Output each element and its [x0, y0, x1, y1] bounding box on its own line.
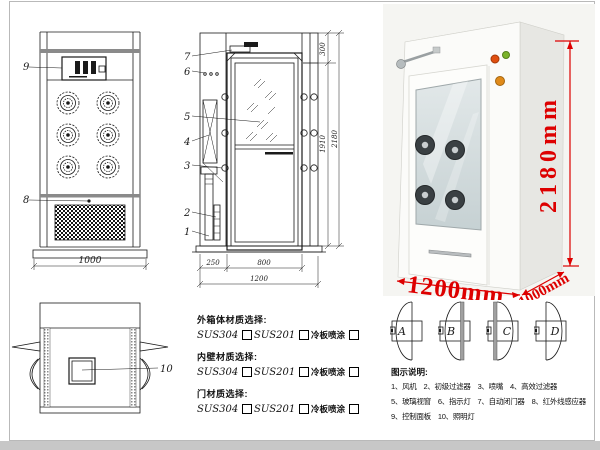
side-walls [192, 33, 326, 252]
nozzle-icon [57, 156, 79, 178]
callout-1-label: 1 [184, 227, 190, 238]
material-checkbox[interactable] [242, 404, 252, 414]
dim-1910-label: 1910 [319, 135, 327, 153]
material-section-inner: 内壁材质选择: SUS304 SUS201 冷板喷涂 [197, 350, 383, 378]
material-option: SUS201 [254, 367, 311, 378]
legend-item: 10、照明灯 [438, 411, 475, 422]
callout-8-dot [87, 199, 90, 202]
nozzle-icon [57, 92, 79, 114]
door-config-b: B [438, 299, 472, 363]
callout-9-label: 9 [23, 62, 30, 73]
front-view-drawing: 9 8 1000 [15, 22, 170, 277]
parts-legend: 图示说明: 1、风机 2、初级过滤器 3、喷嘴 4、高效过滤器 5、玻璃视窗 6… [391, 366, 593, 426]
material-checkbox[interactable] [299, 404, 309, 414]
legend-item: 9、控制面板 [391, 411, 431, 422]
material-option: SUS304 [197, 404, 254, 415]
legend-item: 2、初级过滤器 [423, 381, 470, 392]
dim-1200-label: 1200 [250, 275, 268, 283]
callout-4-label: 4 [183, 137, 190, 148]
material-checkbox[interactable] [349, 404, 359, 414]
orange-indicator-light [496, 77, 505, 86]
callout-10-label: 10 [160, 364, 173, 375]
legend-item: 3、喷嘴 [478, 381, 503, 392]
callout-7-label: 7 [184, 52, 191, 63]
callout-2-label: 2 [183, 208, 190, 219]
bottom-edge-bar [0, 441, 600, 450]
dim-800-label: 800 [257, 259, 271, 267]
side-door [227, 42, 302, 250]
nozzle-icon [97, 92, 119, 114]
callout-6-label: 6 [184, 67, 191, 78]
callout-8-leader [29, 200, 89, 201]
nozzle-grid [57, 92, 119, 178]
side-nozzles [222, 94, 317, 171]
legend-row: 9、控制面板 10、照明灯 [391, 411, 593, 422]
product-photo: 2180mm 1200mm 1000mm [383, 4, 595, 300]
material-section-label: 内壁材质选择: [197, 350, 383, 363]
control-panel [62, 57, 106, 80]
material-checkbox[interactable] [242, 330, 252, 340]
material-section-label: 外箱体材质选择: [197, 313, 383, 326]
config-letter: C [503, 325, 512, 338]
legend-item: 5、玻璃视窗 [391, 396, 431, 407]
nozzle-icon [57, 124, 79, 146]
red-indicator-light [491, 55, 499, 63]
config-letter: D [550, 325, 560, 338]
legend-item: 7、自动闭门器 [478, 396, 525, 407]
dim-300-label: 300 [319, 42, 327, 56]
material-checkbox[interactable] [299, 330, 309, 340]
material-option: 冷板喷涂 [311, 403, 359, 415]
spec-sheet: 9 8 1000 [0, 0, 600, 450]
legend-row: 5、玻璃视窗 6、指示灯 7、自动闭门器 8、红外线感应器 [391, 396, 593, 407]
legend-item: 4、高效过滤器 [510, 381, 557, 392]
callout-8-label: 8 [23, 195, 29, 206]
material-option: SUS201 [254, 330, 311, 341]
dim-2180-label: 2180 [331, 130, 339, 149]
return-grille [55, 205, 125, 240]
top-view-body [40, 303, 140, 413]
photo-dim-height: 2180mm [536, 95, 562, 213]
callout-9-leader [29, 67, 62, 68]
height-dimensions: 300 1910 2180 [318, 30, 344, 249]
legend-item: 6、指示灯 [438, 396, 471, 407]
callout-10-leader [82, 368, 158, 370]
material-option: SUS201 [254, 404, 311, 415]
green-indicator-light [503, 52, 510, 59]
side-callouts: 7 6 5 4 3 2 1 [183, 50, 260, 238]
top-view-drawing: 10 [8, 293, 188, 428]
legend-item: 1、风机 [391, 381, 416, 392]
config-letter: A [397, 325, 406, 338]
door-config-d: D [534, 299, 568, 363]
material-option: SUS304 [197, 330, 254, 341]
material-option: 冷板喷涂 [311, 329, 359, 341]
material-checkbox[interactable] [349, 367, 359, 377]
legend-title: 图示说明: [391, 366, 593, 378]
material-section-outer: 外箱体材质选择: SUS304 SUS201 冷板喷涂 [197, 313, 383, 341]
callout-3-label: 3 [184, 161, 190, 172]
material-option: 冷板喷涂 [311, 366, 359, 378]
material-checkbox[interactable] [242, 367, 252, 377]
door-config-c: C [486, 299, 520, 363]
material-selection: 外箱体材质选择: SUS304 SUS201 冷板喷涂 内壁材质选择: SUS3… [197, 313, 383, 424]
config-letter: B [446, 325, 455, 338]
material-checkbox[interactable] [299, 367, 309, 377]
depth-dimensions: 250 800 1200 [197, 254, 321, 288]
glass-hatch [246, 79, 277, 142]
fan-duct [201, 167, 220, 240]
door-swing-hardware [12, 342, 168, 390]
legend-row: 1、风机 2、初级过滤器 3、喷嘴 4、高效过滤器 [391, 381, 593, 392]
dim-250-label: 250 [205, 259, 220, 267]
filter-box [203, 100, 223, 182]
indicator-dots [204, 73, 219, 76]
dim-1000-label: 1000 [79, 256, 102, 266]
door-config-a: A [390, 299, 424, 363]
door-closer [230, 42, 258, 52]
side-view-drawing: 7 6 5 4 3 2 1 300 [168, 22, 353, 292]
ceiling-lamp [69, 358, 95, 384]
nozzle-icon [97, 124, 119, 146]
nozzle-icon [97, 156, 119, 178]
material-option: SUS304 [197, 367, 254, 378]
material-section-label: 门材质选择: [197, 387, 383, 400]
legend-item: 8、红外线感应器 [532, 396, 586, 407]
door-configuration-options: A B C D [390, 299, 586, 363]
door-handle [265, 152, 293, 155]
callout-5-label: 5 [184, 112, 190, 123]
material-section-door: 门材质选择: SUS304 SUS201 冷板喷涂 [197, 387, 383, 415]
material-checkbox[interactable] [349, 330, 359, 340]
